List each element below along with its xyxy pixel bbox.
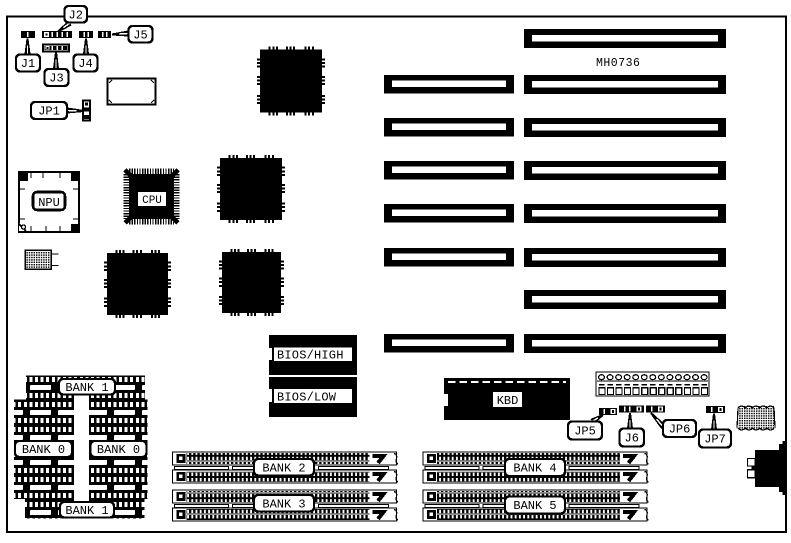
svg-text:J3: J3 [49,72,63,86]
svg-text:BANK 4: BANK 4 [513,462,556,476]
svg-text:BANK 0: BANK 0 [97,443,140,457]
svg-text:BANK 1: BANK 1 [65,381,108,395]
svg-text:BANK 3: BANK 3 [262,497,305,511]
svg-text:KBD: KBD [497,394,519,408]
svg-text:BANK 2: BANK 2 [262,461,305,475]
svg-text:J6: J6 [625,432,639,446]
svg-text:CPU: CPU [142,195,162,207]
svg-text:BANK 0: BANK 0 [22,443,65,457]
svg-text:JP7: JP7 [704,433,726,447]
svg-text:BIOS/HIGH: BIOS/HIGH [277,349,344,363]
svg-text:BANK 5: BANK 5 [513,499,556,513]
svg-text:JP5: JP5 [574,425,596,439]
svg-text:JP6: JP6 [669,423,691,437]
svg-text:JP1: JP1 [38,105,60,119]
svg-text:J1: J1 [21,57,35,71]
svg-text:J2: J2 [69,8,83,22]
svg-text:NPU: NPU [38,196,60,210]
svg-text:MH0736: MH0736 [596,57,640,70]
svg-text:BIOS/LOW: BIOS/LOW [277,391,337,405]
svg-text:BANK 1: BANK 1 [65,504,108,518]
svg-text:J5: J5 [133,28,147,42]
svg-text:J4: J4 [78,57,92,71]
